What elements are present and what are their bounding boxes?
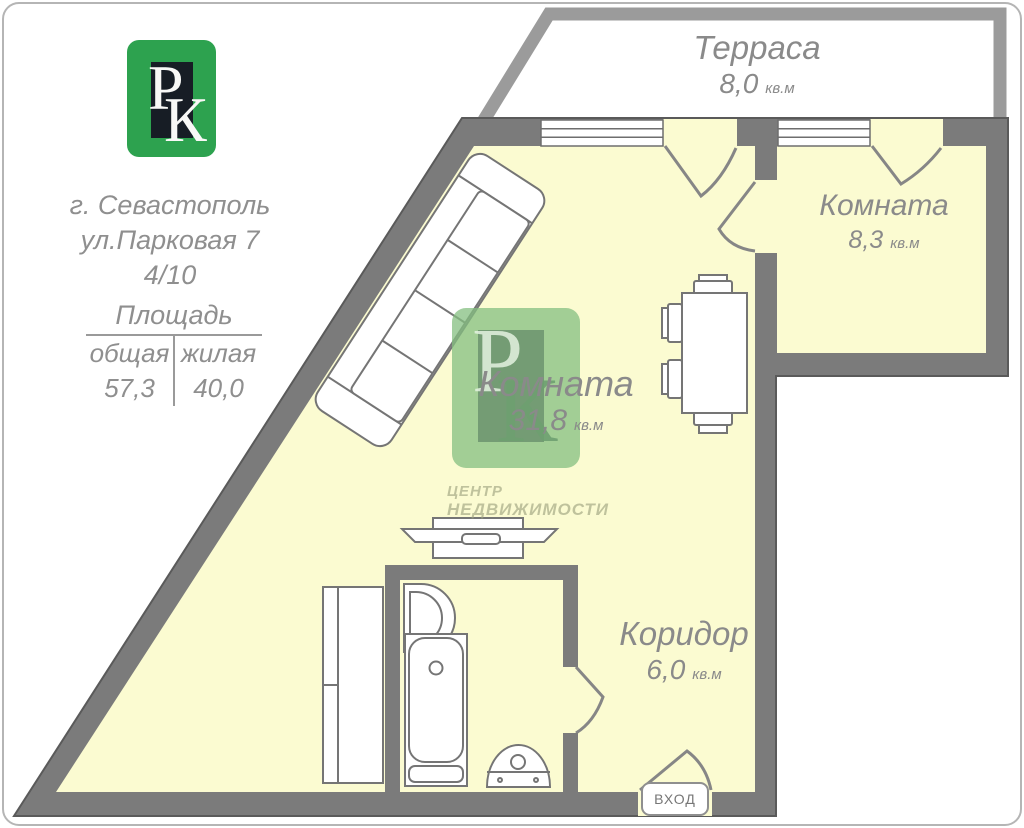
entrance-label: ВХОД: [654, 791, 696, 807]
corridor-area: 6,0кв.м: [619, 654, 748, 686]
watermark-caption-line1: ЦЕНТР: [447, 483, 609, 500]
area-total-value: 57,3: [86, 371, 175, 406]
small-room-area: 8,3кв.м: [819, 226, 948, 255]
table: [682, 293, 747, 413]
main-room-area: 31,8кв.м: [478, 404, 633, 438]
bathroom-wall-left: [385, 565, 400, 792]
chair-left1: [668, 304, 682, 342]
bathroom-wall-right-upper: [563, 580, 578, 667]
area-col-living-label: жилая: [175, 336, 262, 371]
area-col-total-label: общая: [86, 336, 175, 371]
address-block: г. Севастополь ул.Парковая 7 4/10: [30, 188, 310, 293]
window-small-room: [778, 120, 870, 146]
label-terrace: Терраса 8,0кв.м: [693, 30, 820, 100]
area-table-value-row: 57,3 40,0: [86, 371, 262, 406]
area-table: Площадь общая жилая 57,3 40,0: [86, 300, 262, 406]
area-living-value: 40,0: [175, 371, 262, 406]
watermark-caption-line2: НЕДВИЖИМОСТИ: [447, 500, 609, 519]
corridor-name: Коридор: [619, 616, 748, 652]
label-corridor: Коридор 6,0кв.м: [619, 616, 748, 686]
logo-letter-k: К: [164, 88, 207, 152]
address-street: ул.Парковая 7: [30, 223, 310, 258]
area-table-title: Площадь: [86, 300, 262, 336]
room-door-opening: [755, 180, 777, 253]
terrace-door-opening-small: [870, 119, 943, 147]
address-floors: 4/10: [30, 258, 310, 293]
small-room-name: Комната: [819, 188, 948, 224]
chair-left2: [668, 360, 682, 398]
bathroom-wall-top: [385, 565, 578, 580]
bathroom-wall-right-lower: [563, 733, 578, 792]
floorplan-image: Р К ЦЕНТР НЕДВИЖИМОСТИ Р К г. Севастопол…: [0, 0, 1024, 828]
label-main-room: Комната 31,8кв.м: [478, 366, 633, 438]
terrace-name: Терраса: [693, 30, 820, 66]
label-small-room: Комната 8,3кв.м: [819, 188, 948, 255]
terrace-door-opening-main: [663, 119, 737, 147]
chair-bottom-back: [699, 425, 727, 433]
wardrobe: [323, 587, 383, 783]
window-main-room: [541, 120, 663, 146]
terrace-area: 8,0кв.м: [693, 68, 820, 100]
tv-base: [462, 534, 500, 544]
watermark-caption: ЦЕНТР НЕДВИЖИМОСТИ: [447, 483, 609, 519]
agency-logo: Р К: [127, 40, 216, 157]
entrance-badge: ВХОД: [641, 782, 709, 816]
bathtub: [405, 634, 467, 786]
main-room-name: Комната: [478, 366, 633, 402]
area-table-header-row: общая жилая: [86, 336, 262, 371]
address-city: г. Севастополь: [30, 188, 310, 223]
